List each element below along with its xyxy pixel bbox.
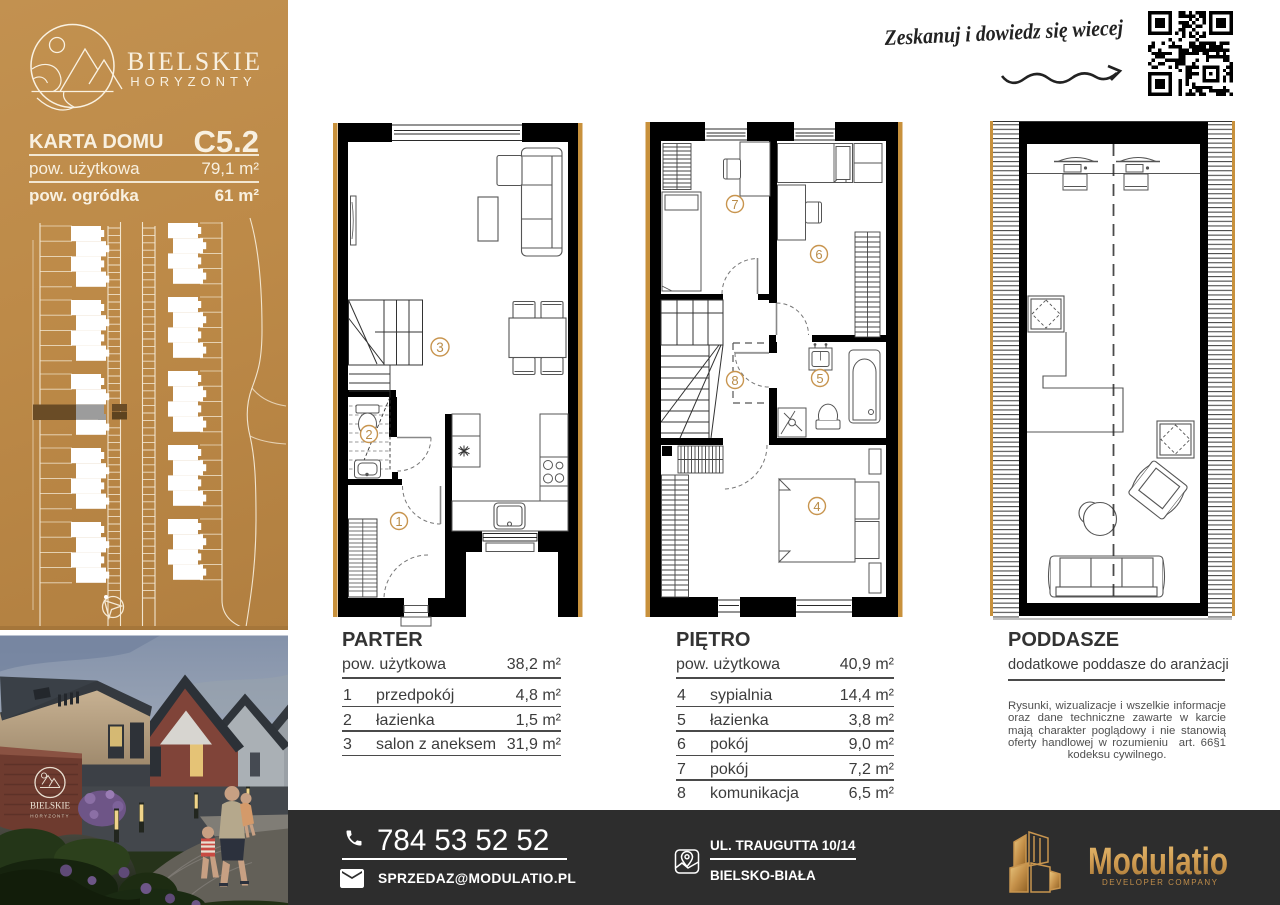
svg-text:1: 1 <box>395 514 402 529</box>
svg-text:3: 3 <box>436 340 444 355</box>
svg-text:7: 7 <box>731 197 738 212</box>
svg-text:2: 2 <box>365 427 372 442</box>
svg-text:5: 5 <box>816 371 823 386</box>
svg-text:8: 8 <box>731 373 738 388</box>
svg-text:Modulatio: Modulatio <box>1088 841 1228 883</box>
svg-text:BIELSKIE: BIELSKIE <box>30 801 70 811</box>
svg-text:HORYZONTY: HORYZONTY <box>30 814 70 819</box>
svg-text:4: 4 <box>813 499 820 514</box>
svg-text:6: 6 <box>815 247 822 262</box>
svg-text:DEVELOPER COMPANY: DEVELOPER COMPANY <box>1102 878 1218 887</box>
